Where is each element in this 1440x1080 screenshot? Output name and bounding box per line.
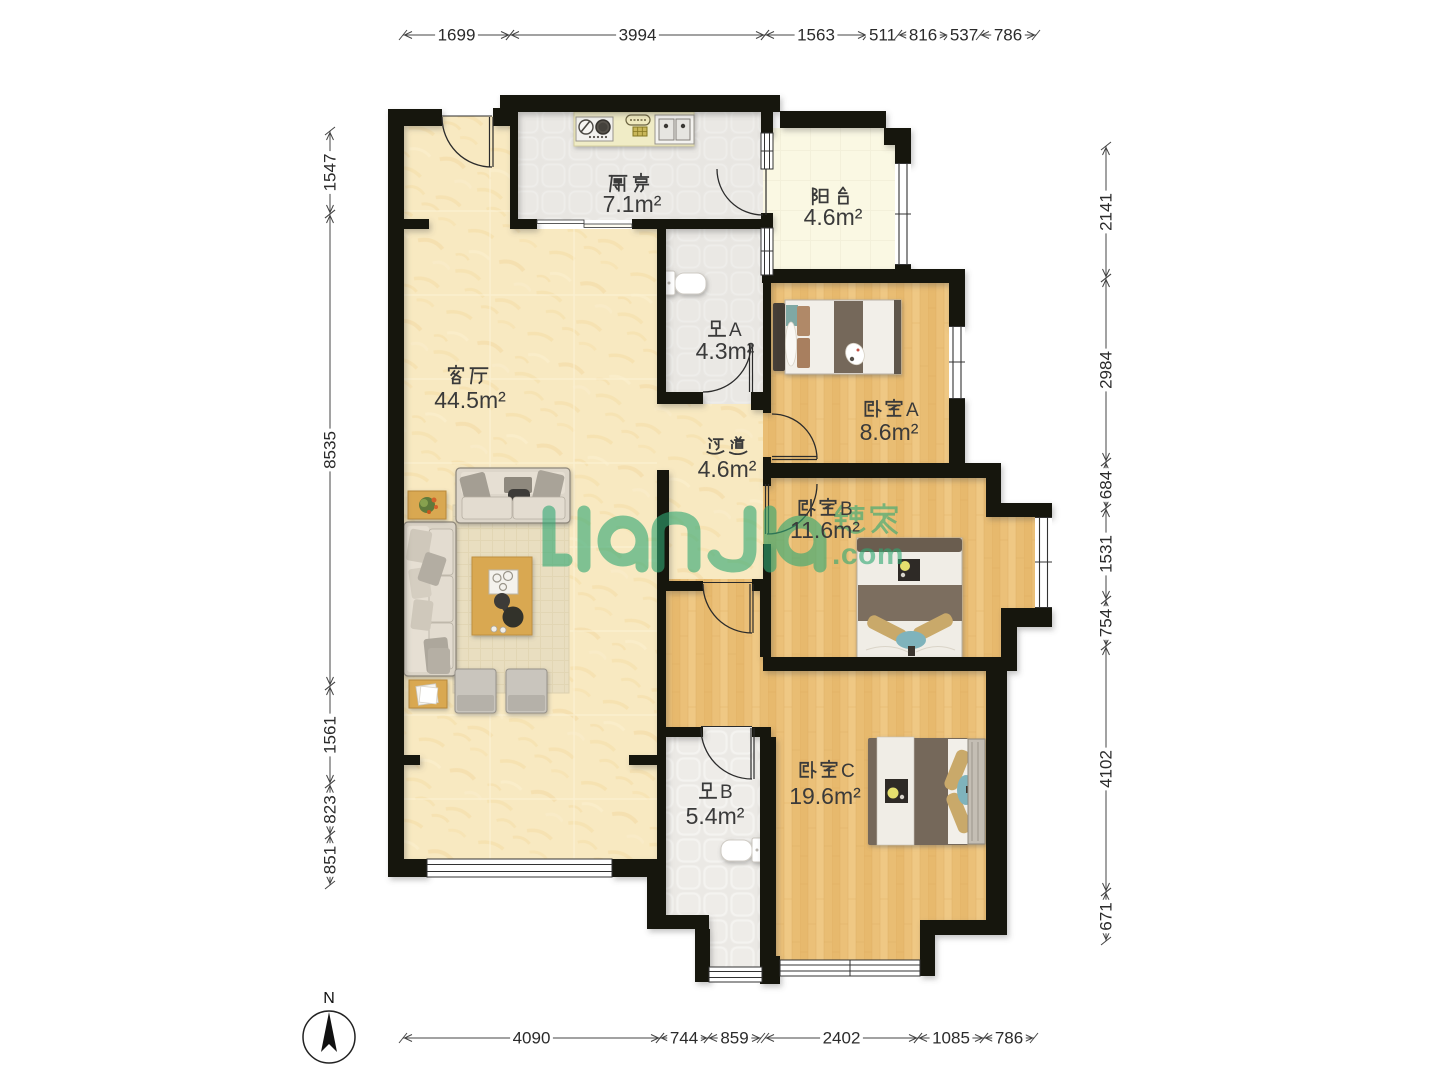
svg-text:1531: 1531: [1097, 535, 1116, 573]
svg-text:8.6m²: 8.6m²: [860, 419, 919, 445]
svg-text:786: 786: [995, 1029, 1023, 1048]
svg-text:671: 671: [1097, 902, 1116, 930]
svg-text:1561: 1561: [321, 716, 340, 754]
svg-text:5.4m²: 5.4m²: [686, 803, 745, 829]
svg-text:N: N: [323, 990, 335, 1007]
svg-text:7.1m²: 7.1m²: [603, 191, 662, 217]
svg-text:851: 851: [321, 846, 340, 874]
svg-text:11.6m²: 11.6m²: [790, 517, 860, 543]
svg-text:A: A: [906, 400, 919, 421]
svg-text:684: 684: [1097, 471, 1116, 499]
svg-text:4.6m²: 4.6m²: [804, 204, 863, 230]
svg-text:1563: 1563: [797, 26, 835, 45]
svg-text:3994: 3994: [619, 26, 657, 45]
svg-text:754: 754: [1097, 609, 1116, 637]
svg-text:B: B: [720, 782, 733, 803]
svg-text:2984: 2984: [1097, 351, 1116, 389]
svg-text:1085: 1085: [932, 1029, 970, 1048]
svg-text:19.6m²: 19.6m²: [789, 783, 861, 809]
svg-text:4102: 4102: [1097, 750, 1116, 788]
svg-text:1699: 1699: [438, 26, 476, 45]
svg-text:C: C: [841, 761, 855, 782]
svg-text:859: 859: [720, 1029, 748, 1048]
svg-text:816: 816: [909, 26, 937, 45]
svg-text:823: 823: [321, 795, 340, 823]
svg-text:2402: 2402: [823, 1029, 861, 1048]
svg-text:786: 786: [994, 26, 1022, 45]
svg-text:1547: 1547: [321, 154, 340, 192]
svg-text:2141: 2141: [1097, 193, 1116, 231]
svg-text:537: 537: [950, 26, 978, 45]
svg-text:44.5m²: 44.5m²: [434, 387, 506, 413]
svg-text:511: 511: [869, 26, 896, 45]
svg-text:744: 744: [670, 1029, 698, 1048]
svg-text:4090: 4090: [513, 1029, 551, 1048]
svg-text:8535: 8535: [321, 431, 340, 469]
svg-text:4.6m²: 4.6m²: [698, 456, 757, 482]
svg-text:4.3m²: 4.3m²: [696, 338, 755, 364]
